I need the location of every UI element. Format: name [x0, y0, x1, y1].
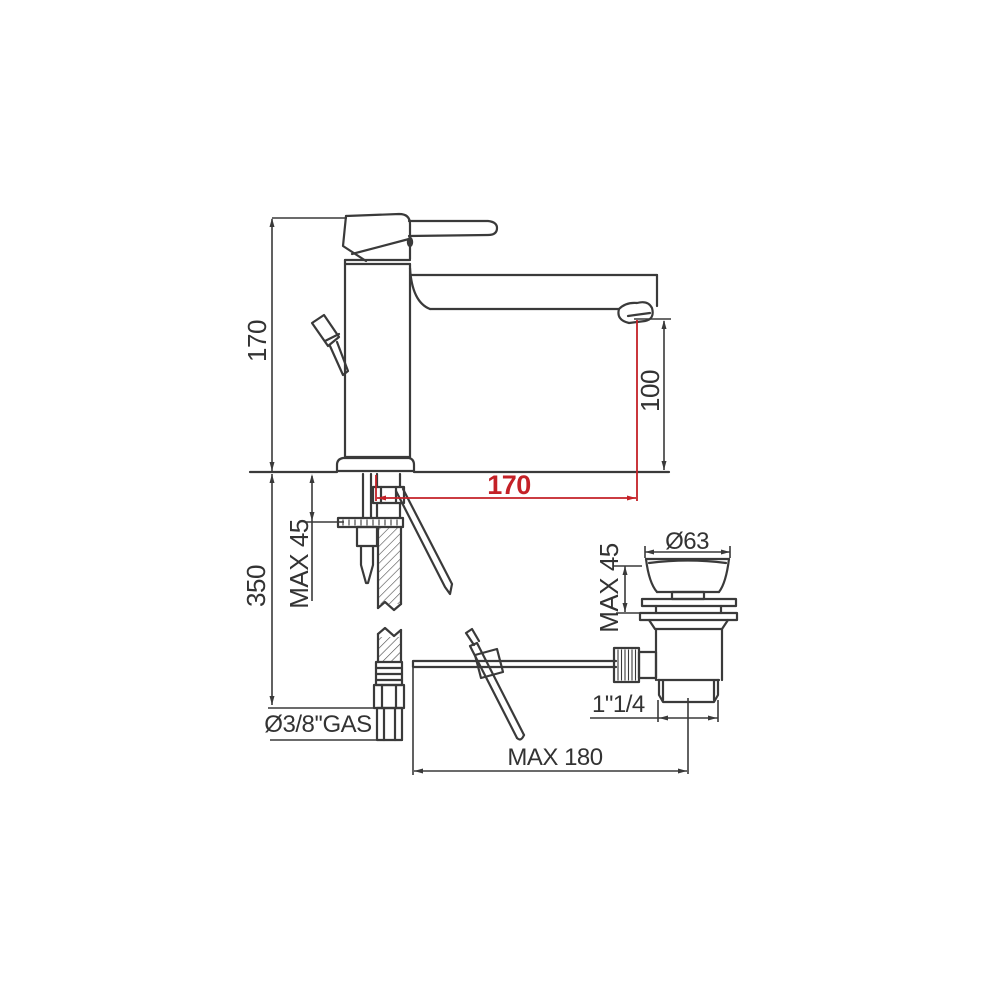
- hose-nut: [374, 685, 404, 708]
- popup-linkage: [413, 629, 616, 739]
- waste-body: [656, 629, 722, 680]
- lever-handle: [409, 221, 497, 236]
- popup-rod-upper: [396, 489, 452, 594]
- shank-nut: [373, 487, 404, 503]
- popup-waste-assembly: [614, 559, 737, 702]
- dim-label-waste-thread: 1"1/4: [592, 691, 645, 718]
- dim-label-supply-connection: Ø3/8''GAS: [264, 711, 371, 738]
- knob-stem: [639, 652, 656, 678]
- waste-flange-sides: [646, 559, 729, 592]
- hose-break-lower: [378, 628, 401, 636]
- popup-knob: [312, 315, 348, 375]
- handle-underside: [352, 239, 409, 254]
- dim-label-waste-deck-thickness: MAX 45: [594, 543, 624, 633]
- base-flange: [337, 458, 414, 471]
- hose-end-fitting: [377, 708, 402, 740]
- diagonal-rod-tip: [517, 735, 524, 739]
- waste-collar: [649, 620, 728, 629]
- aerator-outlet: [618, 302, 652, 323]
- dim-label-total-height: 170: [242, 320, 272, 362]
- mounting-washer: [338, 518, 403, 527]
- stud-nut: [357, 527, 377, 583]
- dim-label-spout-reach: 170: [487, 470, 531, 500]
- waste-flange-dome: [649, 561, 726, 564]
- dim-label-outlet-height: 100: [635, 370, 665, 412]
- faucet-technical-drawing: 170 350 MAX 45 100 170 Ø3/8''GAS Ø63 MAX…: [0, 0, 990, 990]
- mixer-tap-outline: [312, 214, 657, 471]
- washer-hatching: [343, 520, 397, 526]
- dim-label-hose-length: 350: [241, 565, 271, 607]
- horizontal-rod: [413, 661, 616, 667]
- dim-label-deck-thickness: MAX 45: [284, 519, 314, 609]
- lever-indicator-dot: [407, 237, 413, 247]
- waste-plate-lower: [640, 613, 737, 620]
- knob-knurling: [618, 650, 636, 681]
- diagonal-rod: [470, 643, 524, 738]
- dim-label-popup-rod-reach: MAX 180: [507, 744, 602, 771]
- supply-hose: [379, 528, 400, 661]
- technical-drawing-page: 170 350 MAX 45 100 170 Ø3/8''GAS Ø63 MAX…: [0, 0, 990, 990]
- neck-joint: [345, 260, 410, 264]
- threaded-shank: [377, 474, 400, 487]
- fixing-stud: [363, 474, 371, 518]
- dim-label-waste-flange-diameter: Ø63: [665, 528, 709, 555]
